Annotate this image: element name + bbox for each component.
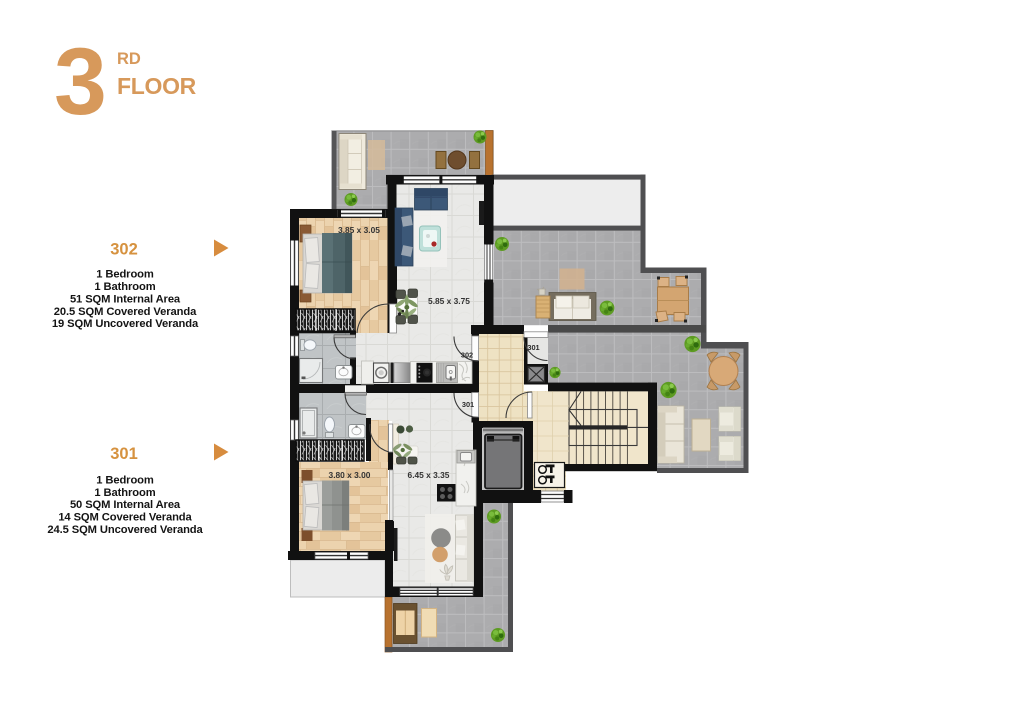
svg-text:51 SQM Internal Area: 51 SQM Internal Area xyxy=(70,293,181,305)
svg-text:1 Bedroom: 1 Bedroom xyxy=(96,269,154,281)
svg-text:1 Bathroom: 1 Bathroom xyxy=(94,281,155,293)
svg-text:302: 302 xyxy=(110,241,138,259)
svg-text:6.45 x 3.35: 6.45 x 3.35 xyxy=(408,470,450,480)
svg-text:301: 301 xyxy=(462,400,474,409)
svg-text:3: 3 xyxy=(54,29,107,135)
svg-text:1 Bathroom: 1 Bathroom xyxy=(94,487,155,499)
svg-text:14 SQM Covered Veranda: 14 SQM Covered Veranda xyxy=(58,512,192,524)
svg-text:RD: RD xyxy=(117,50,141,68)
svg-text:24.5 SQM Uncovered Veranda: 24.5 SQM Uncovered Veranda xyxy=(47,524,203,536)
svg-text:301: 301 xyxy=(110,445,138,463)
svg-text:1 Bedroom: 1 Bedroom xyxy=(96,474,154,486)
svg-text:302: 302 xyxy=(461,351,473,360)
svg-text:3.85 x 3.05: 3.85 x 3.05 xyxy=(338,225,380,235)
svg-text:3.80 x 3.00: 3.80 x 3.00 xyxy=(329,470,371,480)
svg-text:FLOOR: FLOOR xyxy=(117,73,197,99)
svg-text:19 SQM Uncovered Veranda: 19 SQM Uncovered Veranda xyxy=(52,318,199,330)
svg-text:50 SQM Internal Area: 50 SQM Internal Area xyxy=(70,499,181,511)
svg-text:5.85 x 3.75: 5.85 x 3.75 xyxy=(428,296,470,306)
svg-text:301: 301 xyxy=(527,343,539,352)
svg-text:20.5 SQM Covered Veranda: 20.5 SQM Covered Veranda xyxy=(54,306,197,318)
